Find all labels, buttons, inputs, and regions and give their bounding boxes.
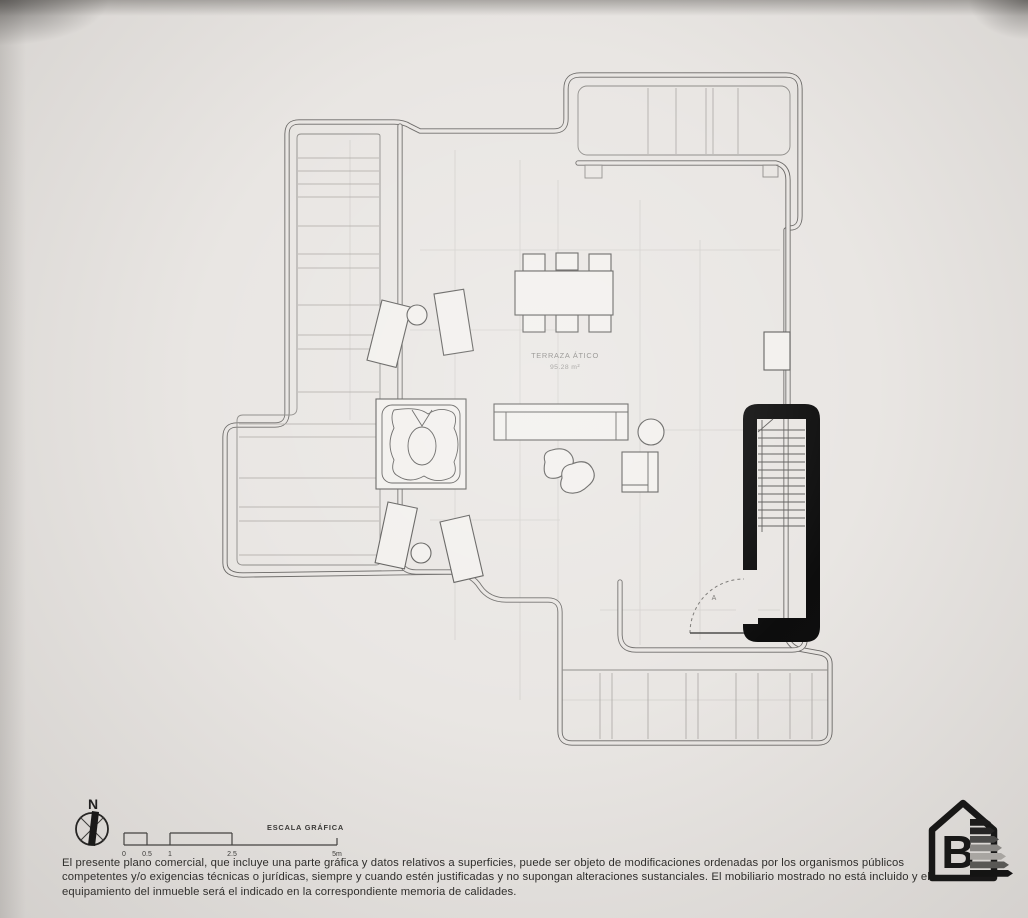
pillar-notch-right: [763, 165, 778, 177]
stair-door-opening: [736, 570, 758, 624]
dining-table: [515, 271, 613, 315]
sun-lounger: [375, 502, 417, 569]
sun-loungers-upper: [367, 289, 473, 367]
coffee-table-round: [638, 419, 664, 445]
legal-disclaimer-text: El presente plano comercial, que incluye…: [62, 856, 936, 899]
bottom-deck-board-lines: [600, 673, 812, 739]
stair-enclosure: A: [690, 404, 820, 642]
room-label: TERRAZA ÁTICO: [531, 351, 599, 360]
left-deck-inner-outline: [237, 134, 380, 565]
dining-chair: [589, 254, 611, 271]
side-table-round: [407, 305, 427, 325]
floor-plan-drawing: TERRAZA ÁTICO 95.28 m²: [0, 0, 1028, 918]
energy-bar: [970, 853, 1006, 860]
scanned-floor-plan-page: TERRAZA ÁTICO 95.28 m²: [0, 0, 1028, 918]
stair-treads: [758, 419, 805, 532]
armchair-square: [622, 452, 658, 492]
sun-lounger: [367, 300, 411, 367]
door-label: A: [712, 595, 717, 602]
side-table-round: [411, 543, 431, 563]
sofa: [494, 404, 628, 440]
scale-bar: 0 0.5 1 2.5 5m ESCALA GRÁFICA: [122, 823, 344, 858]
north-compass-icon: N: [76, 796, 108, 846]
energy-rating-letter: B: [941, 826, 974, 878]
energy-bar: [970, 828, 995, 835]
jacuzzi: [376, 399, 466, 489]
scale-bar-title: ESCALA GRÁFICA: [267, 823, 344, 832]
pillar-notch-left: [585, 165, 602, 178]
upper-deck-inner-outline: [578, 86, 790, 155]
energy-bar: [970, 862, 1009, 869]
energy-bar: [970, 845, 1002, 852]
dining-chair: [523, 254, 545, 271]
energy-bar: [970, 836, 999, 843]
butterfly-chair: [561, 462, 595, 493]
energy-bar: [970, 870, 1013, 877]
room-area-label: 95.28 m²: [550, 364, 580, 371]
north-label: N: [88, 796, 98, 812]
dining-chair: [523, 315, 545, 332]
upper-deck-board-lines: [648, 88, 738, 154]
dining-chair: [589, 315, 611, 332]
left-deck-board-lines: [239, 158, 379, 555]
pillar: [764, 332, 790, 370]
sun-lounger: [434, 289, 473, 355]
dining-chair: [556, 253, 578, 270]
energy-rating-icon: B: [932, 803, 1013, 878]
dining-set: [515, 253, 613, 332]
lounge-group: [494, 404, 664, 493]
door-swing-arc: [690, 579, 744, 633]
dining-chair: [556, 315, 578, 332]
